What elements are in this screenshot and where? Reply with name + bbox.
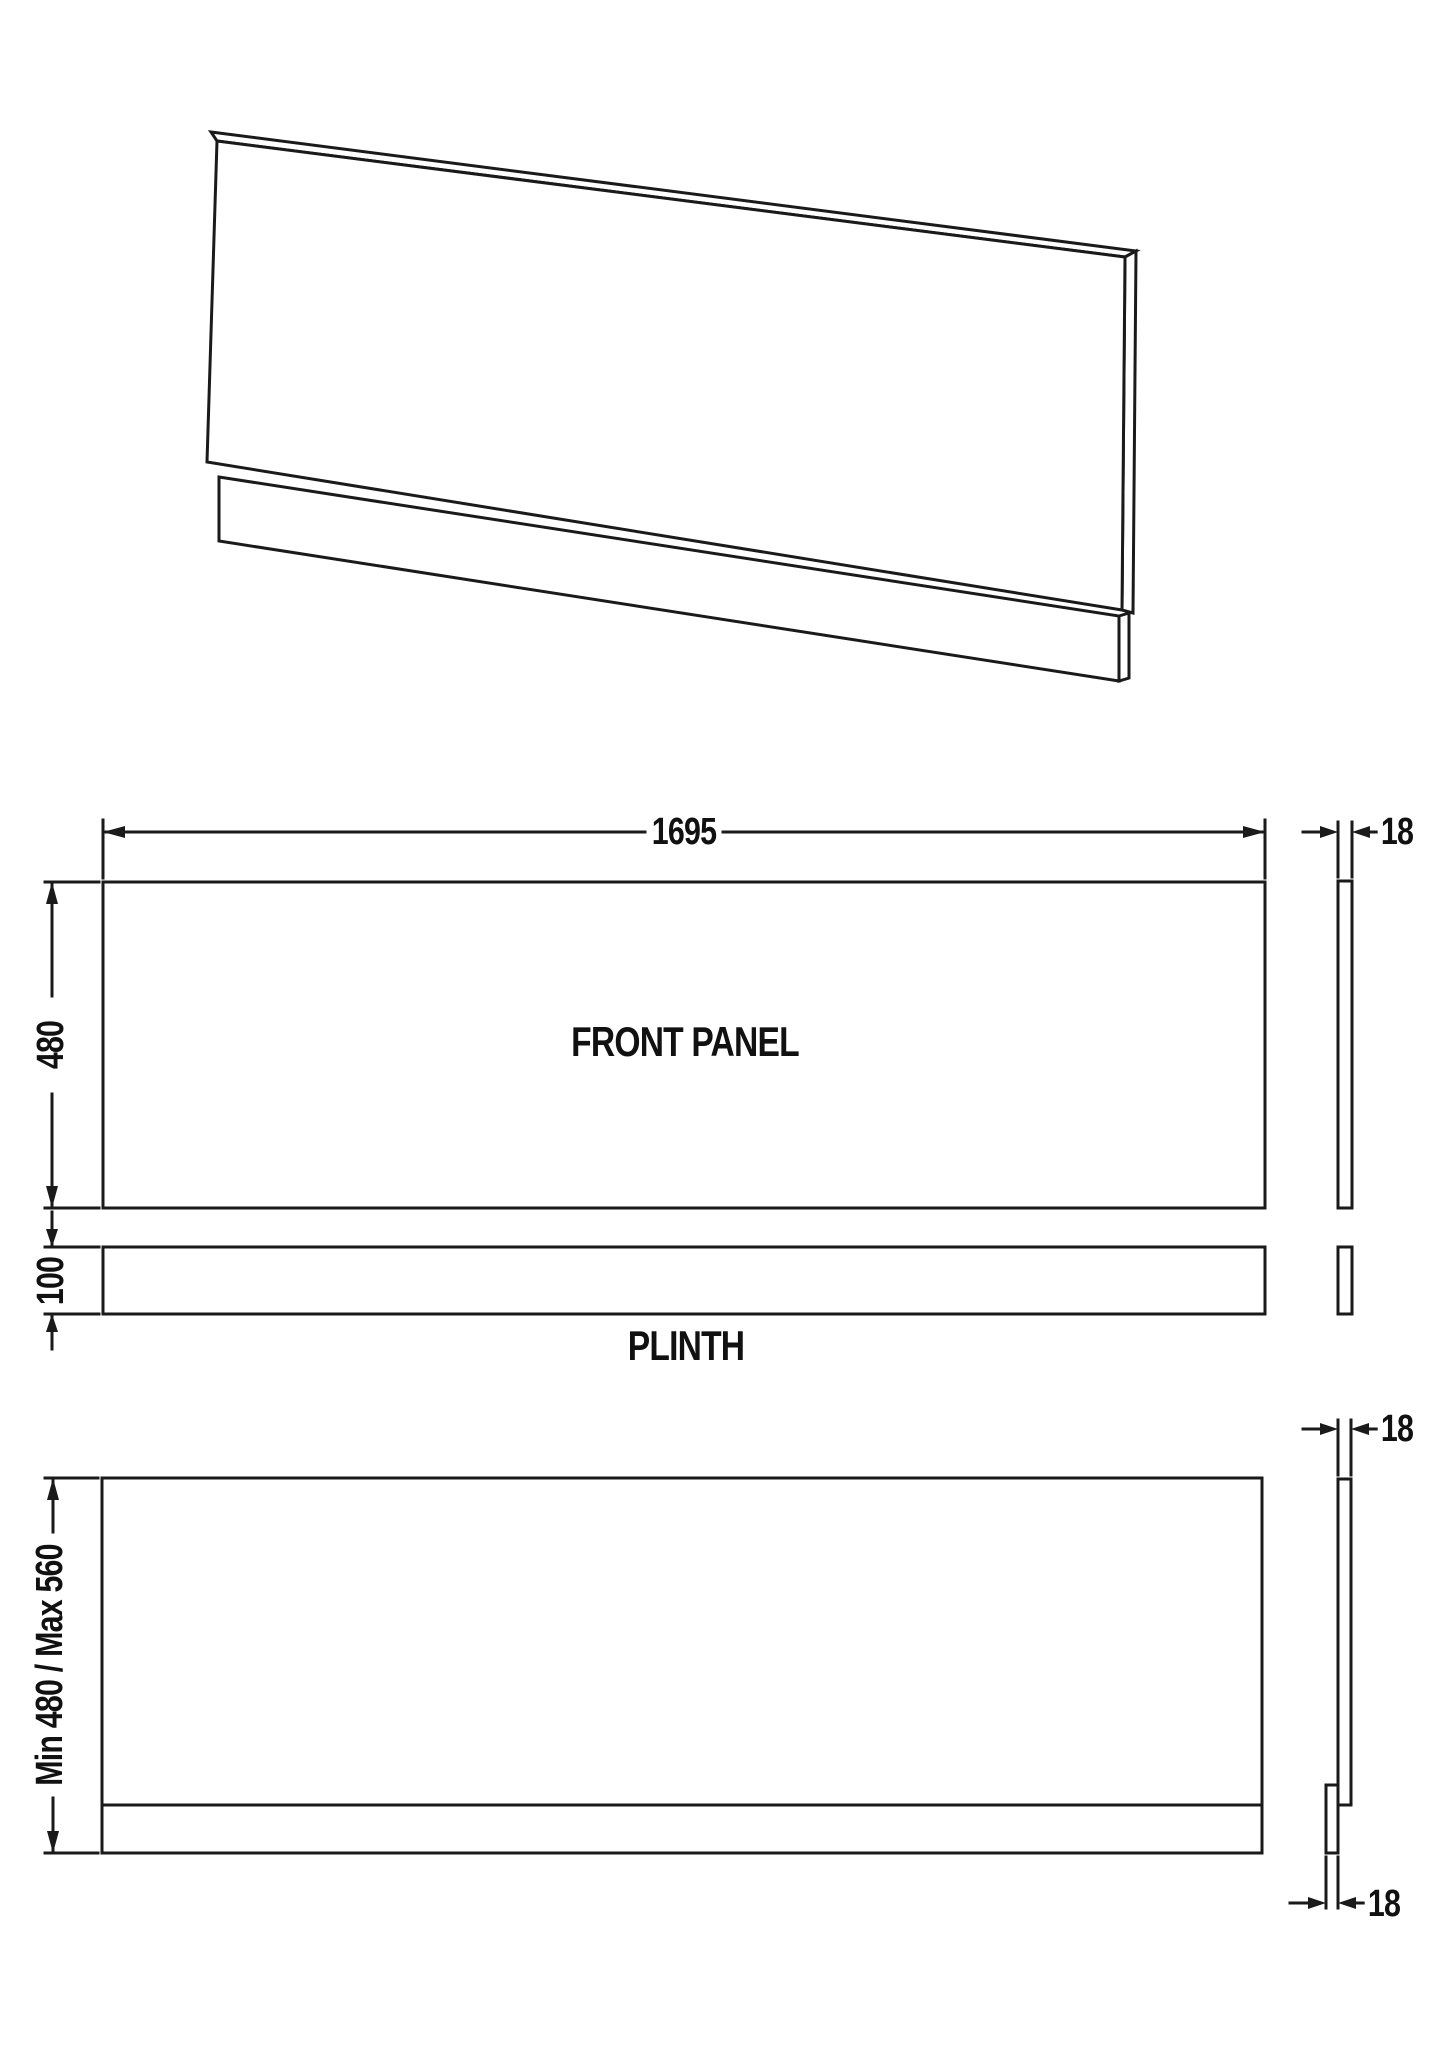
thickness-dimension bbox=[1303, 822, 1379, 877]
iso-view bbox=[207, 132, 1136, 681]
assembled-height-dimension-text: Min 480 / Max 560 bbox=[31, 1541, 69, 1789]
thickness-dimension-text: 18 bbox=[1378, 813, 1417, 851]
front-panel-label: FRONT PANEL bbox=[568, 1021, 802, 1063]
plinth-rect bbox=[103, 1247, 1265, 1314]
assembled-panel-thickness-dimension bbox=[1303, 1420, 1378, 1475]
assembled-panel-thickness-text: 18 bbox=[1378, 1410, 1417, 1448]
assembled-view-rect bbox=[102, 1478, 1262, 1853]
technical-drawing-page: 1695 480 FRONT PANEL 18 100 PLINTH Min 4… bbox=[0, 0, 1445, 2045]
height-dimension-text: 480 bbox=[32, 1018, 70, 1073]
assembled-side-plinth bbox=[1326, 1785, 1338, 1853]
plinth-height-dimension-text: 100 bbox=[32, 1254, 70, 1309]
plinth-label: PLINTH bbox=[625, 1325, 748, 1367]
width-dimension-text: 1695 bbox=[649, 813, 720, 851]
assembled-plinth-thickness-dimension bbox=[1290, 1857, 1365, 1909]
assembled-view bbox=[45, 1420, 1378, 1909]
assembled-plinth-thickness-text: 18 bbox=[1365, 1885, 1404, 1923]
front-view bbox=[45, 820, 1379, 1349]
panel-side-view bbox=[1338, 881, 1352, 1208]
plinth-side-view bbox=[1338, 1247, 1352, 1314]
assembled-side-panel bbox=[1338, 1479, 1351, 1805]
